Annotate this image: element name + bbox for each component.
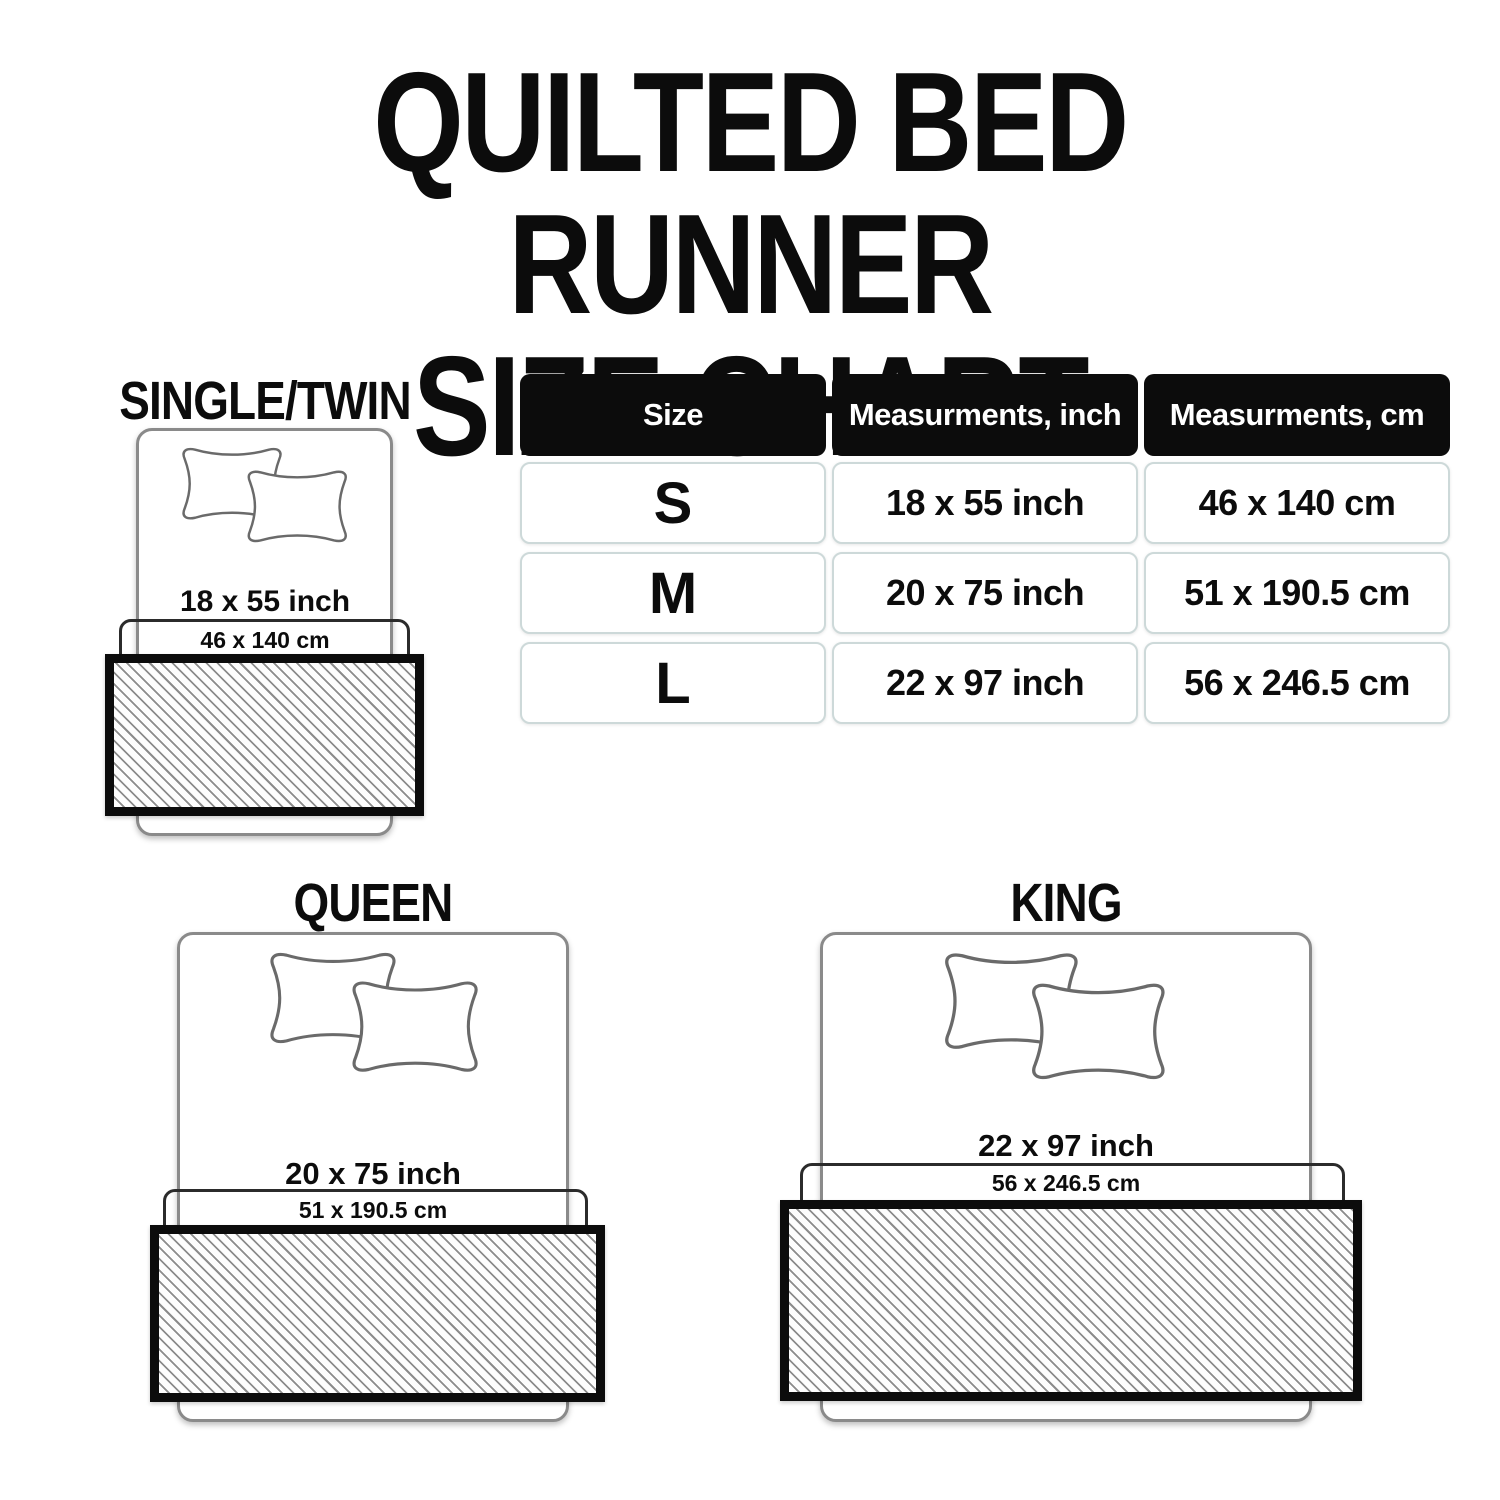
diagram-title-single-twin: SINGLE/TWIN — [95, 370, 435, 432]
runner-hatch-king — [780, 1200, 1362, 1401]
table-cell-cm-m: 51 x 190.5 cm — [1144, 552, 1450, 634]
table-cell-size-m: M — [520, 552, 826, 634]
runner-hatch-queen — [150, 1225, 605, 1402]
runner-hatch-single — [105, 654, 424, 816]
table-cell-inch-s: 18 x 55 inch — [832, 462, 1138, 544]
pillows-illustration-king — [932, 948, 1184, 1087]
cm-dimension-label-queen: 51 x 190.5 cm — [223, 1197, 523, 1224]
table-cell-cm-l: 56 x 246.5 cm — [1144, 642, 1450, 724]
cm-dimension-label-single: 46 x 140 cm — [115, 627, 415, 654]
table-header-size: Size — [520, 374, 826, 456]
pillow-icon — [1034, 985, 1163, 1077]
inch-dimension-label-queen: 20 x 75 inch — [223, 1156, 523, 1192]
table-cell-size-l: L — [520, 642, 826, 724]
table-cell-cm-s: 46 x 140 cm — [1144, 462, 1450, 544]
diagram-title-king: KING — [896, 872, 1236, 934]
pillows-illustration-queen — [258, 948, 496, 1079]
table-cell-inch-m: 20 x 75 inch — [832, 552, 1138, 634]
inch-dimension-label-single: 18 x 55 inch — [115, 585, 415, 619]
pillow-icon — [249, 472, 346, 541]
diagram-title-queen: QUEEN — [203, 872, 543, 934]
page-title-line1: QUILTED BED RUNNER — [135, 52, 1365, 336]
table-header-inch: Measurments, inch — [832, 374, 1138, 456]
pillow-icon — [354, 983, 476, 1070]
pillows-illustration-single — [172, 444, 362, 548]
table-header-cm: Measurments, cm — [1144, 374, 1450, 456]
cm-dimension-label-king: 56 x 246.5 cm — [916, 1170, 1216, 1197]
inch-dimension-label-king: 22 x 97 inch — [916, 1128, 1216, 1164]
table-cell-size-s: S — [520, 462, 826, 544]
size-chart-page: QUILTED BED RUNNER SIZE CHART SINGLE/TWI… — [0, 0, 1500, 1500]
table-cell-inch-l: 22 x 97 inch — [832, 642, 1138, 724]
